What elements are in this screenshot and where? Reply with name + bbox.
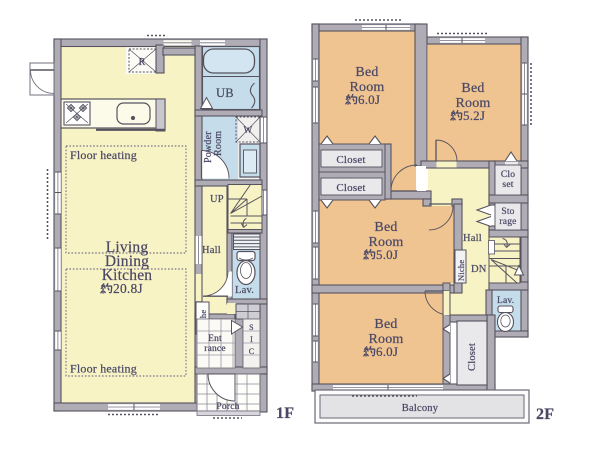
svg-text:Lav.: Lav. bbox=[497, 296, 514, 306]
svg-text:rage: rage bbox=[499, 217, 516, 227]
svg-text:Closet: Closet bbox=[467, 343, 478, 371]
svg-text:Bed: Bed bbox=[461, 81, 484, 96]
svg-text:Hall: Hall bbox=[202, 245, 221, 256]
svg-text:W: W bbox=[244, 125, 253, 135]
svg-text:5.0J: 5.0J bbox=[376, 247, 398, 262]
svg-text:Floor heating: Floor heating bbox=[70, 362, 137, 376]
svg-text:Ent: Ent bbox=[208, 334, 222, 344]
svg-text:Bed: Bed bbox=[355, 65, 378, 80]
svg-text:Closet: Closet bbox=[336, 182, 365, 194]
svg-text:1F: 1F bbox=[276, 405, 294, 422]
svg-text:S: S bbox=[249, 323, 254, 332]
svg-text:I: I bbox=[250, 335, 253, 344]
svg-text:Porch: Porch bbox=[216, 402, 239, 412]
svg-text:20.8J: 20.8J bbox=[113, 281, 143, 296]
svg-text:rance: rance bbox=[204, 344, 226, 354]
svg-text:6.0J: 6.0J bbox=[358, 92, 380, 107]
svg-text:UP: UP bbox=[210, 194, 224, 205]
svg-text:Lav.: Lav. bbox=[235, 285, 254, 296]
svg-text:6.0J: 6.0J bbox=[376, 344, 398, 359]
svg-text:5.2J: 5.2J bbox=[463, 108, 485, 123]
svg-text:Balcony: Balcony bbox=[402, 403, 439, 414]
svg-text:Hall: Hall bbox=[463, 233, 482, 244]
svg-text:R: R bbox=[139, 57, 146, 68]
svg-text:Sto: Sto bbox=[501, 207, 514, 217]
svg-text:set: set bbox=[502, 180, 513, 190]
svg-text:Clo: Clo bbox=[501, 170, 515, 180]
svg-text:DN: DN bbox=[471, 264, 487, 275]
svg-text:Floor heating: Floor heating bbox=[70, 148, 137, 162]
svg-text:Closet: Closet bbox=[336, 154, 365, 166]
svg-text:UB: UB bbox=[216, 86, 234, 100]
svg-text:2F: 2F bbox=[536, 406, 554, 423]
svg-text:Bed: Bed bbox=[374, 317, 397, 332]
svg-text:Niche: Niche bbox=[456, 260, 466, 281]
svg-text:C: C bbox=[249, 347, 255, 356]
svg-text:Bed: Bed bbox=[374, 220, 397, 235]
svg-text:Room: Room bbox=[213, 131, 224, 156]
